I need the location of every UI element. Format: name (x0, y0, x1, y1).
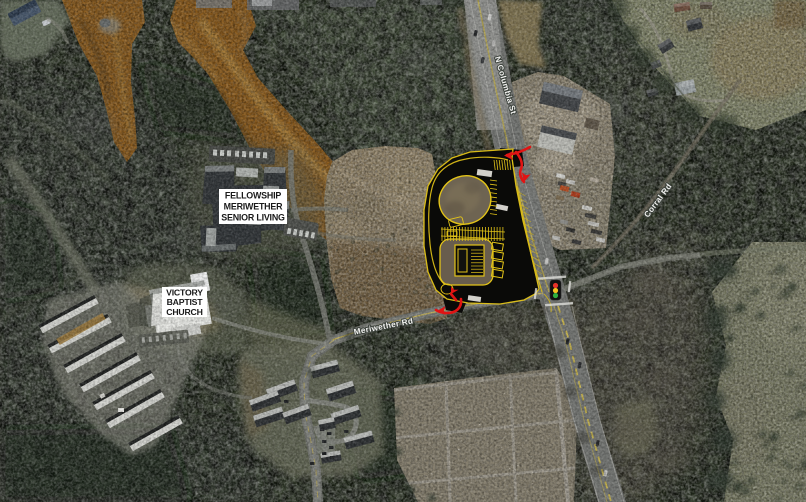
svg-text:CHURCH: CHURCH (166, 307, 202, 317)
svg-text:SENIOR LIVING: SENIOR LIVING (221, 213, 285, 223)
svg-text:VICTORY: VICTORY (166, 287, 203, 297)
svg-text:BAPTIST: BAPTIST (167, 297, 204, 307)
svg-text:MERIWETHER: MERIWETHER (224, 202, 283, 212)
svg-text:FELLOWSHIP: FELLOWSHIP (225, 191, 281, 201)
